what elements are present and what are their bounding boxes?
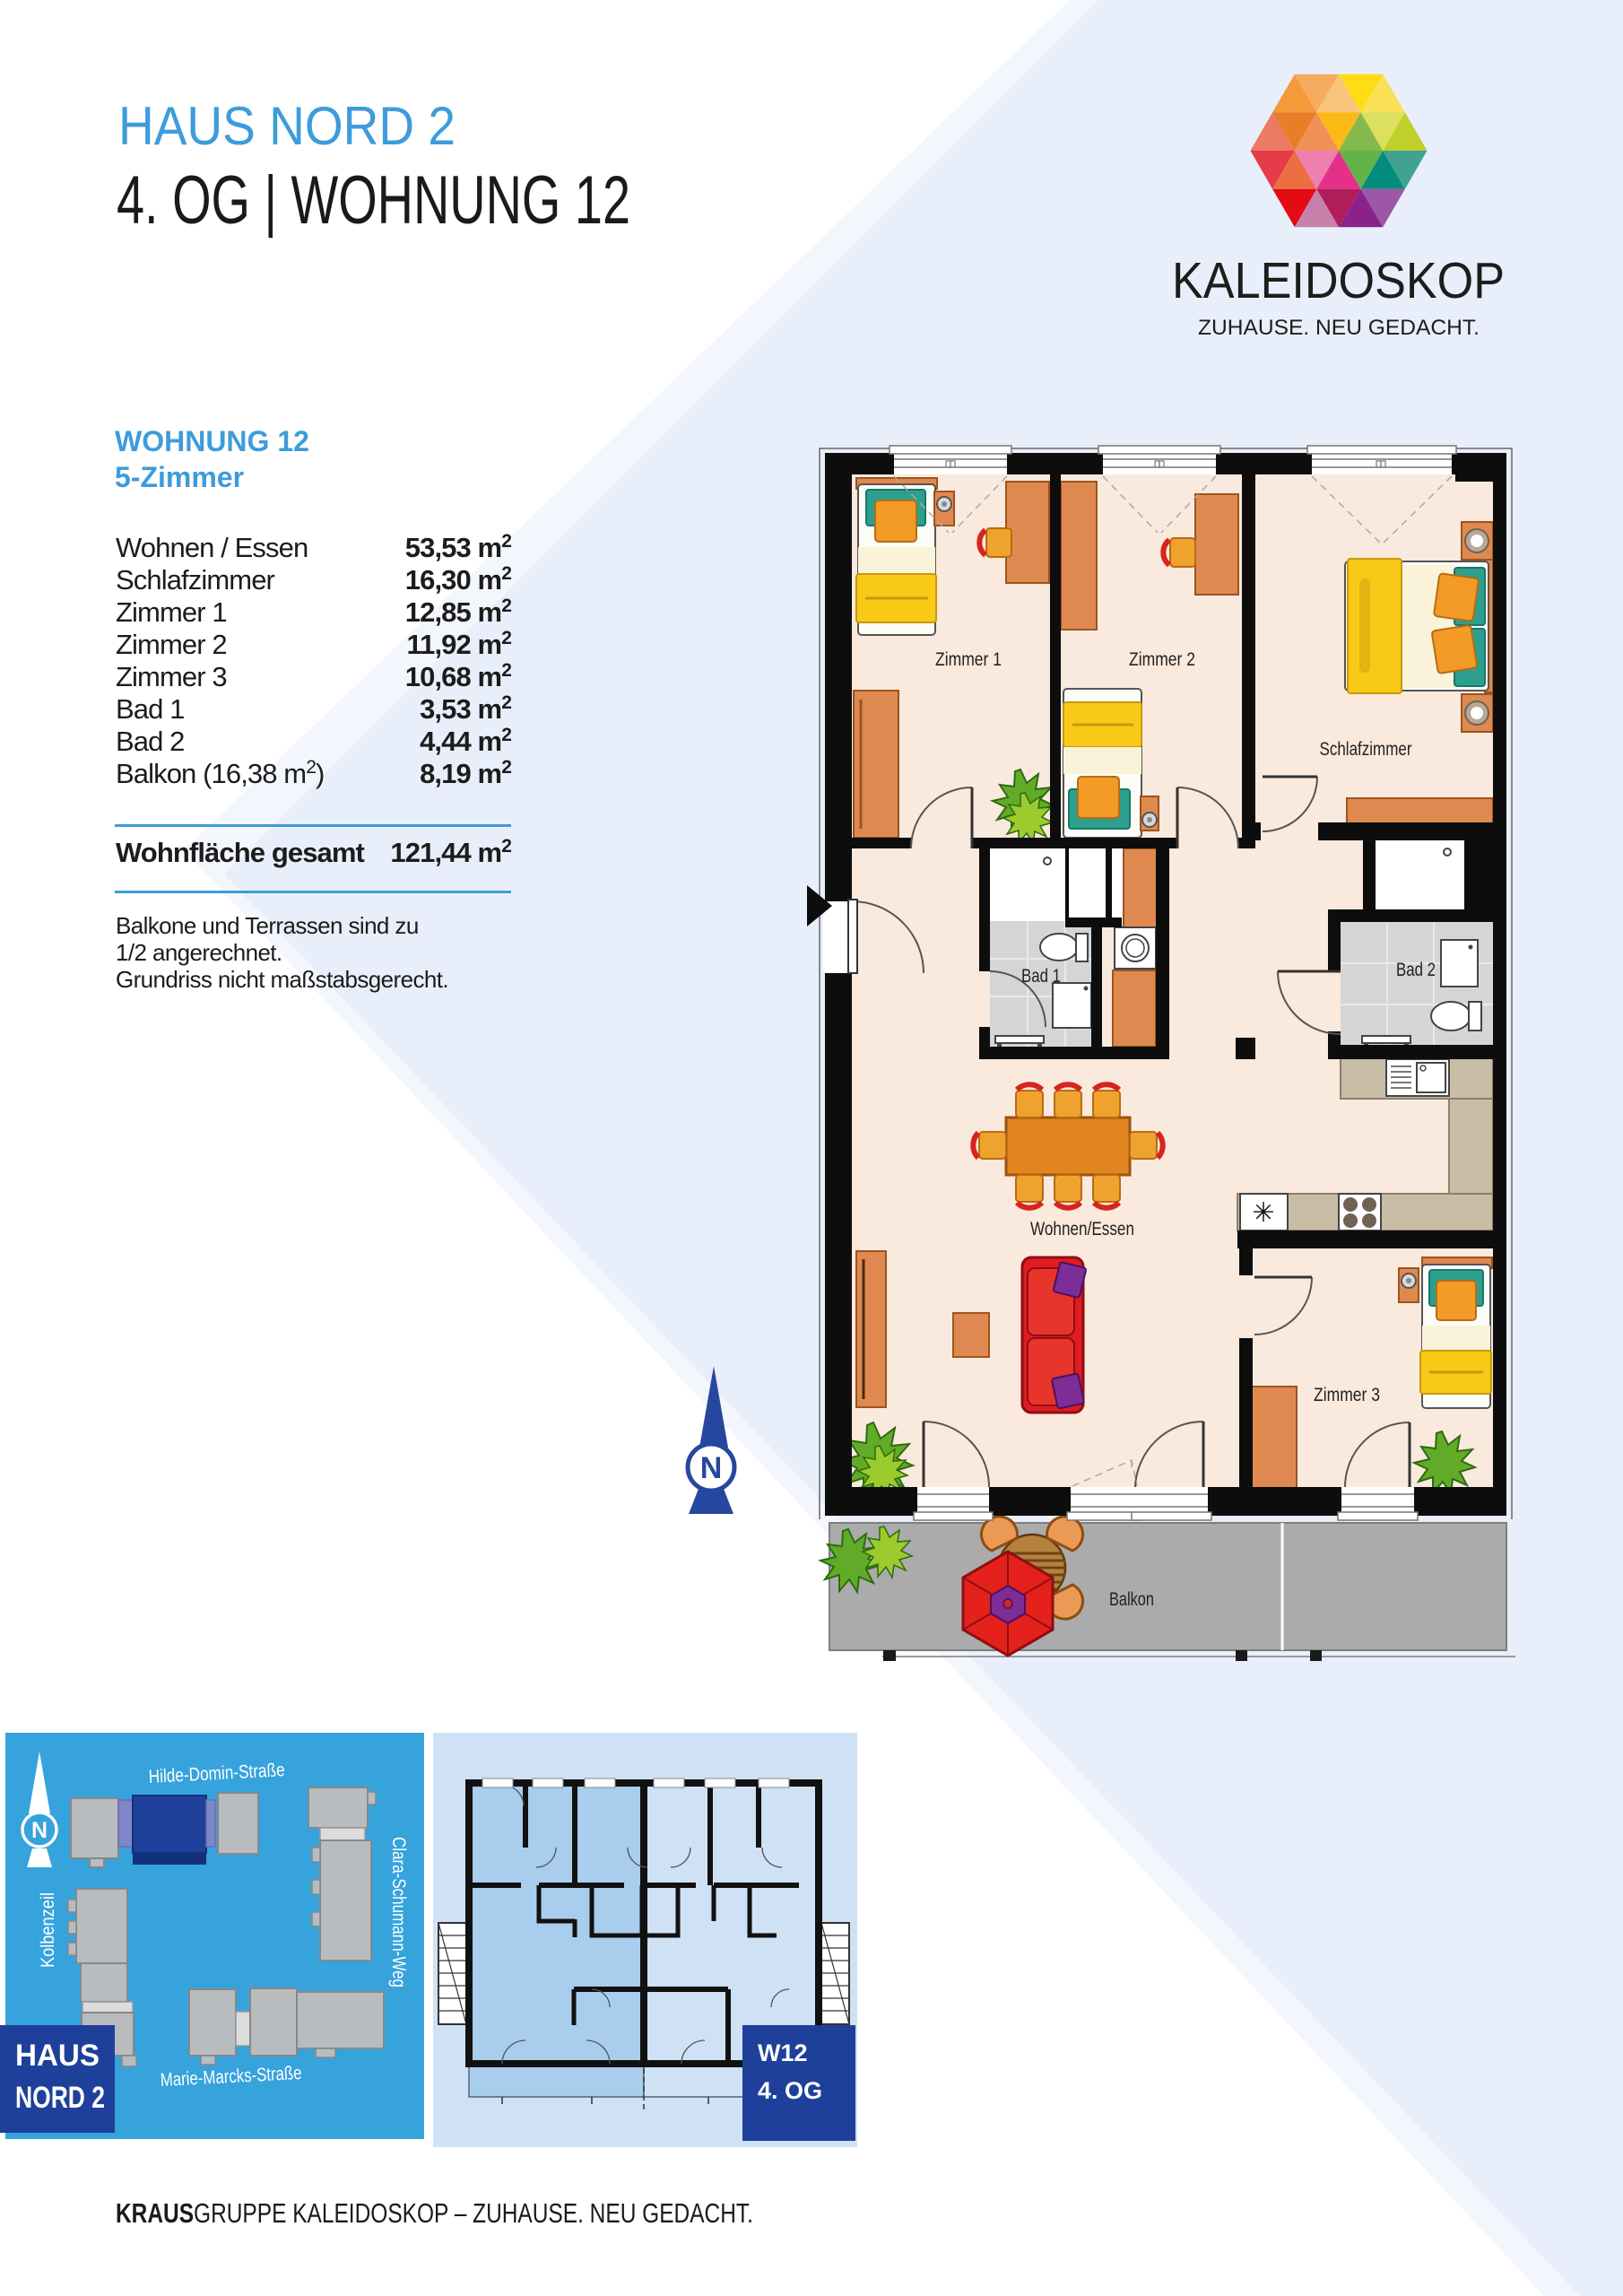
svg-text:3,53 m2: 3,53 m2 bbox=[420, 692, 511, 725]
svg-text:KRAUSGRUPPE KALEIDOSKOP – ZUH: KRAUSGRUPPE KALEIDOSKOP – ZUHAUSE. NEU G… bbox=[116, 2197, 753, 2228]
svg-text:11,92 m2: 11,92 m2 bbox=[406, 628, 511, 660]
svg-text:16,30 m2: 16,30 m2 bbox=[405, 563, 511, 596]
svg-text:8,19 m2: 8,19 m2 bbox=[420, 757, 511, 789]
svg-text:4. OG: 4. OG bbox=[758, 2077, 822, 2104]
svg-text:Zimmer 1: Zimmer 1 bbox=[935, 649, 1002, 670]
svg-text:121,44 m2: 121,44 m2 bbox=[390, 836, 511, 868]
svg-text:N: N bbox=[700, 1451, 723, 1485]
svg-text:4,44 m2: 4,44 m2 bbox=[420, 725, 511, 757]
svg-text:N: N bbox=[31, 1818, 48, 1843]
svg-text:1/2 angerechnet.: 1/2 angerechnet. bbox=[116, 939, 282, 966]
svg-text:Wohnen/Essen: Wohnen/Essen bbox=[1030, 1219, 1134, 1239]
svg-text:KALEIDOSKOP: KALEIDOSKOP bbox=[1172, 252, 1505, 309]
svg-text:Clara-Schumann-Weg: Clara-Schumann-Weg bbox=[388, 1837, 409, 1987]
svg-text:Bad 2: Bad 2 bbox=[116, 726, 185, 757]
svg-text:Zimmer 3: Zimmer 3 bbox=[1314, 1385, 1380, 1405]
svg-text:Schlafzimmer: Schlafzimmer bbox=[1320, 739, 1412, 760]
svg-text:NORD 2: NORD 2 bbox=[15, 2081, 105, 2115]
svg-text:12,85 m2: 12,85 m2 bbox=[405, 596, 511, 628]
svg-text:W12: W12 bbox=[758, 2039, 808, 2066]
svg-text:Zimmer 2: Zimmer 2 bbox=[116, 629, 227, 660]
svg-text:Bad 1: Bad 1 bbox=[116, 693, 185, 725]
svg-text:Balkon: Balkon bbox=[1109, 1589, 1154, 1610]
svg-text:Bad 1: Bad 1 bbox=[1021, 966, 1061, 987]
svg-text:Wohnfläche gesamt: Wohnfläche gesamt bbox=[116, 837, 365, 868]
svg-text:✳: ✳ bbox=[1252, 1198, 1274, 1228]
svg-text:ZUHAUSE. NEU GEDACHT.: ZUHAUSE. NEU GEDACHT. bbox=[1198, 316, 1480, 340]
svg-text:5-Zimmer: 5-Zimmer bbox=[115, 461, 244, 493]
svg-text:Wohnen / Essen: Wohnen / Essen bbox=[116, 532, 308, 563]
svg-text:Balkon (16,38 m2): Balkon (16,38 m2) bbox=[116, 757, 324, 789]
svg-text:Zimmer 1: Zimmer 1 bbox=[116, 596, 227, 628]
svg-text:Kolbenzeil: Kolbenzeil bbox=[38, 1892, 58, 1968]
svg-text:WOHNUNG 12: WOHNUNG 12 bbox=[115, 425, 309, 457]
svg-text:Zimmer 2: Zimmer 2 bbox=[1129, 649, 1195, 670]
svg-text:Schlafzimmer: Schlafzimmer bbox=[116, 564, 275, 596]
svg-text:HAUS: HAUS bbox=[15, 2039, 100, 2073]
svg-text:4. OG | WOHNUNG 12: 4. OG | WOHNUNG 12 bbox=[117, 162, 630, 239]
svg-text:Balkone und Terrassen sind zu: Balkone und Terrassen sind zu bbox=[116, 912, 419, 939]
svg-text:HAUS NORD 2: HAUS NORD 2 bbox=[118, 96, 456, 156]
svg-text:53,53 m2: 53,53 m2 bbox=[405, 531, 511, 563]
svg-text:Bad 2: Bad 2 bbox=[1396, 960, 1436, 980]
svg-text:10,68 m2: 10,68 m2 bbox=[405, 660, 511, 692]
svg-text:Grundriss nicht maßstabsgerech: Grundriss nicht maßstabsgerecht. bbox=[116, 966, 448, 993]
svg-text:Zimmer 3: Zimmer 3 bbox=[116, 661, 227, 692]
